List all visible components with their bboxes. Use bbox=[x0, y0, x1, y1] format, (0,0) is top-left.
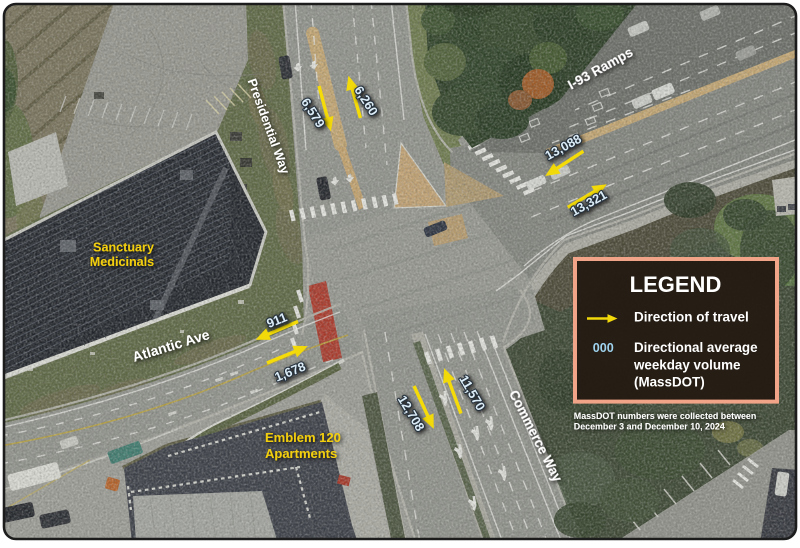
svg-text:(MassDOT): (MassDOT) bbox=[634, 374, 705, 389]
svg-text:weekday volume: weekday volume bbox=[633, 357, 740, 372]
svg-text:Directional average: Directional average bbox=[634, 340, 758, 355]
svg-text:LEGEND: LEGEND bbox=[630, 272, 722, 297]
svg-text:Sanctuary: Sanctuary bbox=[93, 240, 154, 254]
svg-text:Direction of travel: Direction of travel bbox=[634, 310, 749, 325]
svg-text:Medicinals: Medicinals bbox=[90, 255, 154, 269]
svg-text:000: 000 bbox=[593, 341, 614, 355]
svg-text:Emblem 120: Emblem 120 bbox=[265, 430, 341, 445]
svg-text:December 3 and December 10, 20: December 3 and December 10, 2024 bbox=[574, 422, 725, 432]
svg-text:Apartments: Apartments bbox=[265, 446, 337, 461]
svg-text:MassDOT numbers were collected: MassDOT numbers were collected between bbox=[574, 411, 757, 421]
